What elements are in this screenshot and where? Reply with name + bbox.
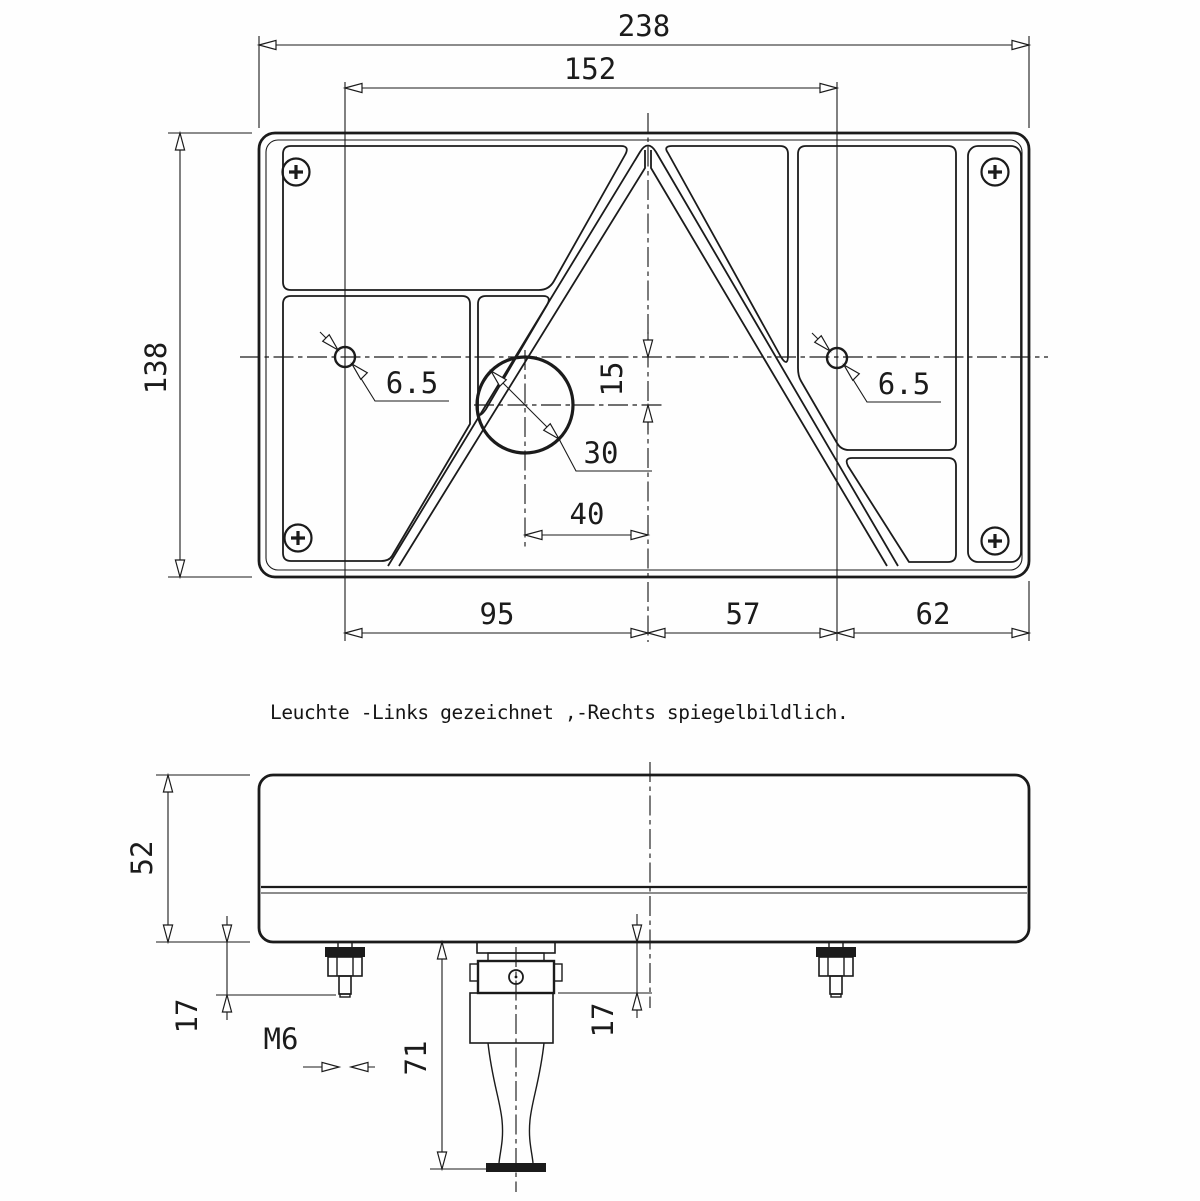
side-view: 52 17 M6 71 17 bbox=[125, 762, 1029, 1192]
caption-text: Leuchte -Links gezeichnet ,-Rechts spieg… bbox=[270, 701, 848, 724]
dimension-lines-side bbox=[168, 775, 637, 1169]
arrowheads-side bbox=[163, 775, 641, 1169]
lens-panel-right-large bbox=[798, 146, 956, 450]
lens-strip-right bbox=[968, 146, 1021, 562]
lens-panel-bottom-right bbox=[847, 458, 956, 562]
dim-side-height-label: 52 bbox=[125, 841, 159, 876]
centerlines-side bbox=[516, 762, 650, 1192]
dim-bottom-right-label: 62 bbox=[916, 597, 951, 631]
phillips-screw-icon bbox=[285, 525, 312, 552]
lens-panel-top-left bbox=[283, 146, 627, 290]
mounting-bolt-left bbox=[325, 942, 365, 997]
phillips-screw-icon bbox=[982, 528, 1009, 555]
dim-gland-x-label: 40 bbox=[570, 497, 605, 531]
dim-bottom-mid-label: 57 bbox=[726, 597, 761, 631]
phillips-screw-icon bbox=[982, 159, 1009, 186]
phillips-screw-icon bbox=[283, 159, 310, 186]
dim-center-offset-label: 15 bbox=[595, 362, 629, 397]
dim-width-label: 238 bbox=[618, 9, 670, 43]
dim-stud-left-label: 17 bbox=[170, 999, 204, 1034]
extension-lines-front bbox=[168, 36, 1029, 641]
dim-hole-right-label: 6.5 bbox=[878, 367, 930, 401]
tail-lamp-technical-drawing: 238 152 138 6.5 6.5 15 30 40 95 57 62 Le… bbox=[0, 0, 1200, 1201]
cable-boot-right-edge bbox=[529, 1043, 544, 1163]
mounting-bolt-right bbox=[816, 942, 856, 997]
dim-thread-label: M6 bbox=[264, 1022, 299, 1056]
housing-outline-front bbox=[259, 133, 1029, 577]
extension-lines-side bbox=[156, 775, 652, 1169]
housing-outline-side bbox=[259, 775, 1029, 942]
lens-panel-middle-small bbox=[478, 296, 549, 415]
dim-bottom-left-label: 95 bbox=[480, 597, 515, 631]
cable-boot-left-edge bbox=[488, 1043, 503, 1163]
dim-height-label: 138 bbox=[139, 342, 173, 394]
dim-connector-label: 71 bbox=[399, 1041, 433, 1076]
lens-panel-apex-sliver bbox=[666, 146, 788, 362]
dim-inner-width-label: 152 bbox=[564, 52, 616, 86]
technical-drawing-page: 238 152 138 6.5 6.5 15 30 40 95 57 62 Le… bbox=[0, 0, 1200, 1201]
front-view: 238 152 138 6.5 6.5 15 30 40 95 57 62 bbox=[139, 9, 1048, 642]
lens-panel-lower-left bbox=[283, 296, 470, 561]
dim-stud-right-label: 17 bbox=[586, 1003, 620, 1038]
triangle-reflector bbox=[388, 146, 898, 567]
dim-hole-left-label: 6.5 bbox=[386, 366, 438, 400]
housing-inner-border bbox=[266, 140, 1022, 570]
dim-gland-dia-label: 30 bbox=[584, 436, 619, 470]
